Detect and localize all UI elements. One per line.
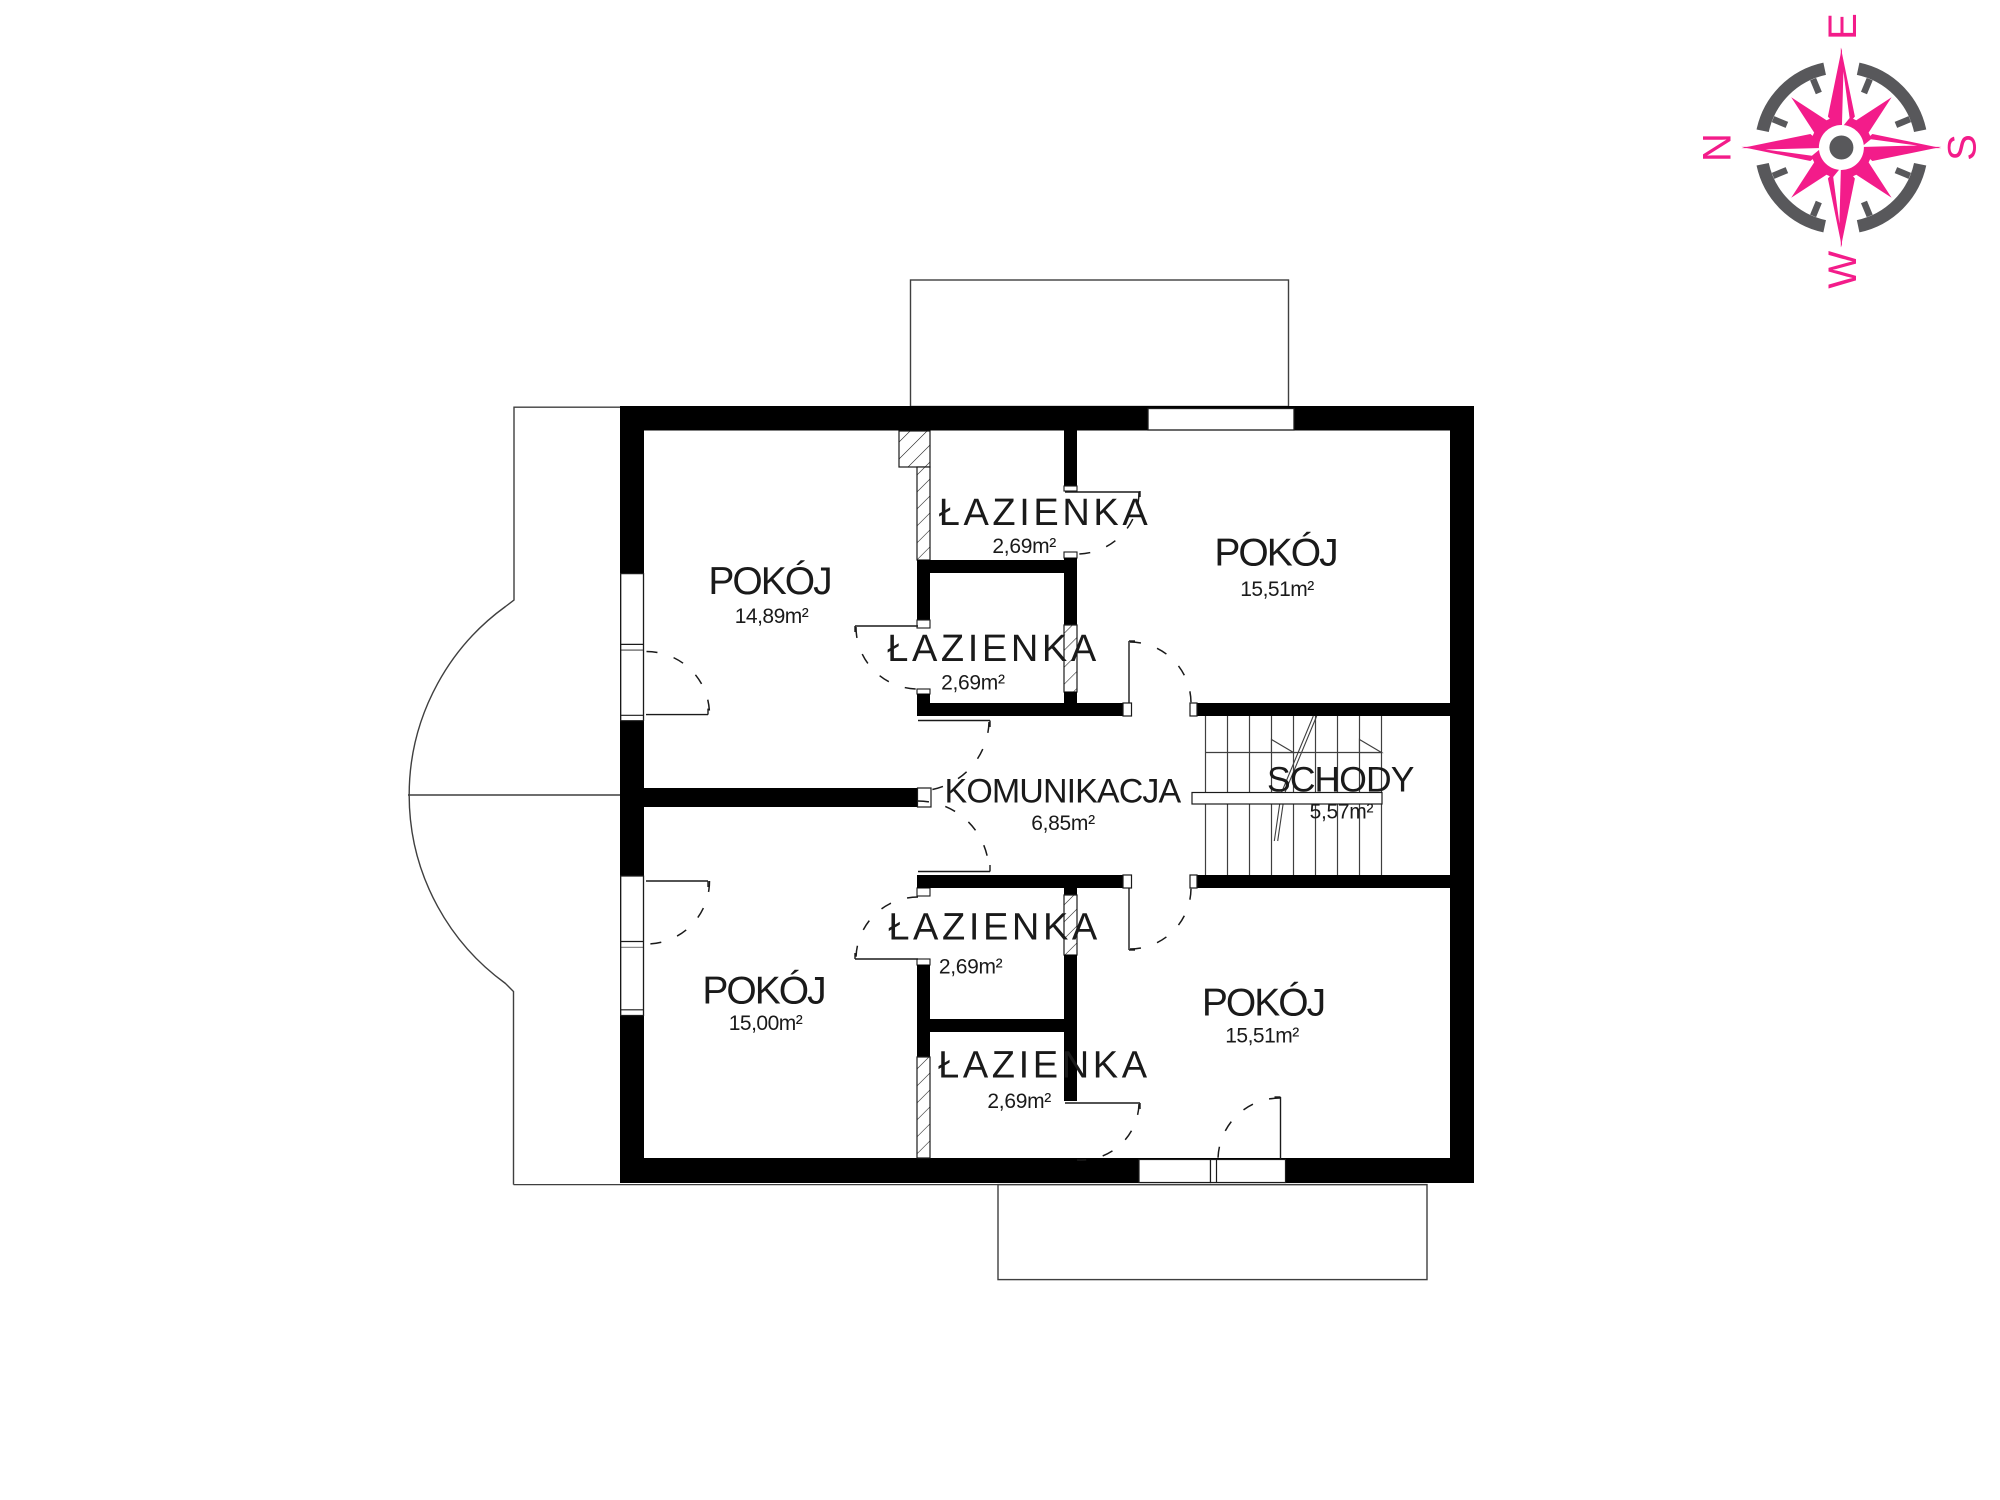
svg-text:N: N	[1696, 133, 1740, 162]
svg-text:W: W	[1821, 251, 1865, 289]
svg-text:2,69m²: 2,69m²	[992, 535, 1056, 558]
svg-text:2,69m²: 2,69m²	[987, 1090, 1051, 1113]
svg-text:15,51m²: 15,51m²	[1240, 578, 1314, 601]
svg-text:6,85m²: 6,85m²	[1031, 812, 1095, 835]
svg-text:2,69m²: 2,69m²	[939, 956, 1003, 979]
svg-text:ŁAZIENKA: ŁAZIENKA	[888, 907, 1101, 949]
svg-text:14,89m²: 14,89m²	[735, 605, 809, 628]
svg-text:15,51m²: 15,51m²	[1225, 1025, 1299, 1048]
svg-text:KOMUNIKACJA: KOMUNIKACJA	[945, 773, 1182, 811]
svg-text:2,69m²: 2,69m²	[941, 672, 1005, 695]
svg-text:ŁAZIENKA: ŁAZIENKA	[938, 1045, 1151, 1087]
svg-text:ŁAZIENKA: ŁAZIENKA	[887, 628, 1100, 670]
svg-text:E: E	[1821, 13, 1865, 40]
svg-text:POKÓJ: POKÓJ	[1214, 532, 1336, 575]
svg-text:15,00m²: 15,00m²	[729, 1012, 803, 1035]
svg-text:5,57m²: 5,57m²	[1310, 800, 1374, 823]
svg-text:SCHODY: SCHODY	[1267, 759, 1414, 799]
svg-text:POKÓJ: POKÓJ	[1202, 981, 1324, 1024]
svg-text:ŁAZIENKA: ŁAZIENKA	[939, 492, 1152, 534]
svg-text:POKÓJ: POKÓJ	[702, 969, 824, 1012]
svg-text:POKÓJ: POKÓJ	[708, 560, 830, 603]
svg-text:S: S	[1940, 134, 1984, 161]
